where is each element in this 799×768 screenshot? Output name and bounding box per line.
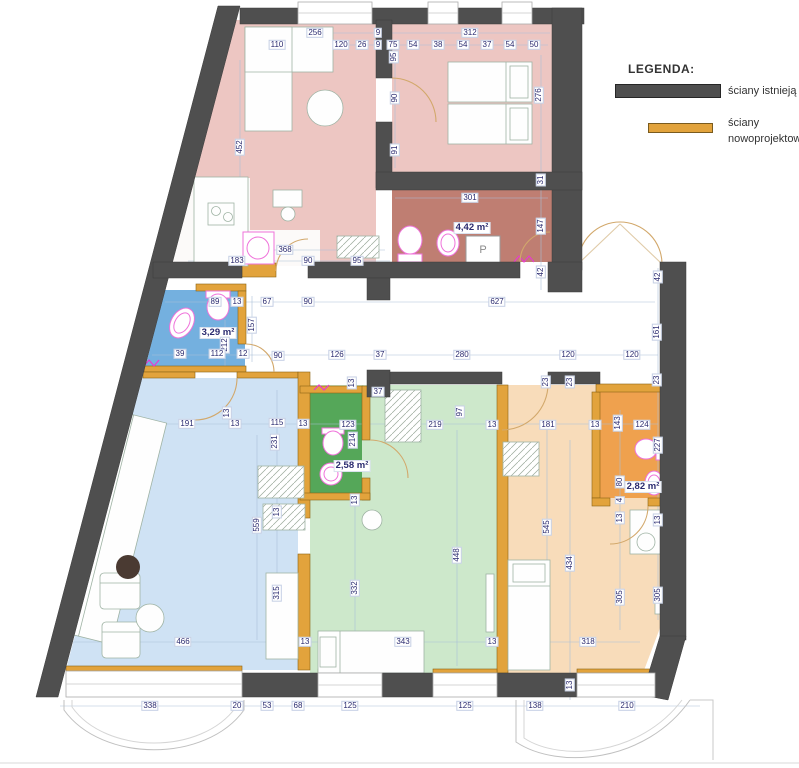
legend-existing-walls-swatch <box>615 84 721 98</box>
window-top-3 <box>502 2 532 24</box>
door-blue-bath <box>246 344 274 372</box>
armchair-2 <box>102 622 140 658</box>
toilet-orange-bath <box>635 438 662 460</box>
mirror-green <box>486 574 494 632</box>
legend: LEGENDA: ściany istnieją ściany nowoproj… <box>610 56 799 166</box>
legend-title: LEGENDA: <box>628 62 695 76</box>
wardrobe-green <box>385 390 421 442</box>
legend-existing-walls-label: ściany istnieją <box>728 85 796 97</box>
toilet-green-bath <box>322 428 344 455</box>
wardrobe-orange <box>503 442 539 476</box>
bed-1 <box>448 62 532 102</box>
window-green-1 <box>318 673 382 697</box>
armchair-1 <box>100 573 140 609</box>
window-top-2 <box>428 2 458 24</box>
wall-right-main <box>660 262 686 640</box>
wall-right-top <box>552 8 582 270</box>
balconies <box>0 700 799 763</box>
legend-new-walls-swatch <box>648 123 713 133</box>
plant <box>116 555 140 579</box>
floor-plan-page: 2561101202699753125438543754509590914522… <box>0 0 799 768</box>
legend-new-walls-label: ściany nowoprojektow <box>728 116 799 148</box>
wardrobe-blue-1 <box>258 466 304 498</box>
toilet-blue-bath <box>206 291 230 320</box>
toilet-main-bath <box>398 226 422 262</box>
window-top-1 <box>298 2 372 24</box>
bidet-main-bath <box>437 230 459 256</box>
round-table-pink <box>307 90 343 126</box>
stool-green <box>362 510 382 530</box>
sink-green-bath <box>320 463 342 485</box>
washing-machine-kitchen <box>243 232 274 264</box>
bed-green <box>318 631 424 673</box>
window-blue-room <box>66 671 242 697</box>
bed-orange <box>508 560 550 670</box>
shelf-blue <box>266 573 298 659</box>
wardrobe-pink <box>337 236 379 258</box>
coffee-table <box>136 604 164 632</box>
bed-2 <box>448 104 532 144</box>
wardrobe-blue-2 <box>263 504 305 530</box>
window-orange-room <box>577 673 655 697</box>
stove <box>208 203 234 225</box>
window-green-2 <box>433 673 497 697</box>
washer-p-box <box>466 236 500 264</box>
